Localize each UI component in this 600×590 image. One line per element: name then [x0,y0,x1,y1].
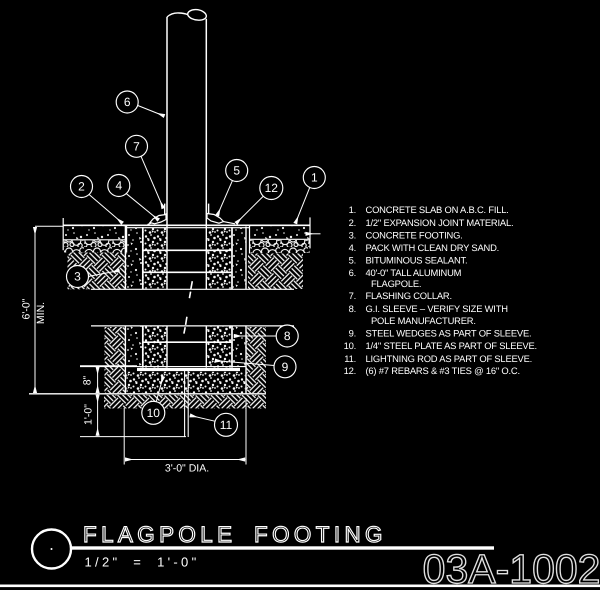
svg-text:10.: 10. [344,340,356,351]
svg-text:(6) #7 REBARS & #3 TIES @ 16": (6) #7 REBARS & #3 TIES @ 16" O.C. [366,365,520,376]
svg-text:STEEL WEDGES AS PART OF SLEEVE: STEEL WEDGES AS PART OF SLEEVE. [366,328,532,339]
svg-text:9: 9 [282,360,289,374]
svg-text:6.: 6. [349,267,356,278]
svg-text:7.: 7. [349,290,356,301]
svg-text:G.I. SLEEVE – VERIFY SIZE WITH: G.I. SLEEVE – VERIFY SIZE WITH [366,303,508,314]
svg-text:40'-0" TALL ALUMINUM: 40'-0" TALL ALUMINUM [366,267,462,278]
svg-text:4: 4 [115,179,122,193]
svg-text:7: 7 [133,140,140,154]
svg-text:1/2" EXPANSION JOINT MATERIAL.: 1/2" EXPANSION JOINT MATERIAL. [366,217,514,228]
svg-text:2.: 2. [349,217,356,228]
svg-text:LIGHTNING ROD AS PART OF SLEEV: LIGHTNING ROD AS PART OF SLEEVE. [366,353,533,364]
svg-text:FLASHING COLLAR.: FLASHING COLLAR. [366,290,452,301]
svg-text:9.: 9. [349,328,356,339]
svg-text:1: 1 [311,171,318,185]
svg-text:2: 2 [78,180,85,194]
svg-text:1/2" = 1'-0": 1/2" = 1'-0" [85,555,200,570]
svg-text:MIN.: MIN. [35,302,47,324]
svg-text:12: 12 [265,181,279,195]
svg-text:FLAGPOLE.: FLAGPOLE. [371,278,421,289]
svg-text:6: 6 [124,95,131,109]
svg-text:6'-0": 6'-0" [21,298,33,319]
svg-text:10: 10 [147,406,161,420]
svg-text:1/4" STEEL PLATE AS PART OF SL: 1/4" STEEL PLATE AS PART OF SLEEVE. [366,340,537,351]
svg-text:11: 11 [220,418,233,432]
svg-text:8.: 8. [349,303,356,314]
svg-text:11.: 11. [344,353,356,364]
svg-text:8": 8" [81,375,93,385]
svg-text:PACK WITH CLEAN DRY SAND.: PACK WITH CLEAN DRY SAND. [366,242,500,253]
svg-text:3'-0" DIA.: 3'-0" DIA. [165,463,209,475]
svg-text:FLAGPOLE FOOTING: FLAGPOLE FOOTING [83,522,387,547]
svg-text:POLE MANUFACTURER.: POLE MANUFACTURER. [371,315,476,326]
svg-text:4.: 4. [349,242,356,253]
svg-text:BITUMINOUS SEALANT.: BITUMINOUS SEALANT. [366,254,468,265]
svg-text:1.: 1. [349,204,356,215]
svg-text:8: 8 [284,329,291,343]
svg-text:5: 5 [233,164,240,178]
svg-text:03A-1002: 03A-1002 [423,546,600,590]
svg-text:1'-0": 1'-0" [82,404,94,425]
svg-text:CONCRETE SLAB ON A.B.C. FILL.: CONCRETE SLAB ON A.B.C. FILL. [366,204,509,215]
svg-text:12.: 12. [344,365,356,376]
svg-text:3: 3 [74,270,81,284]
svg-text:CONCRETE FOOTING.: CONCRETE FOOTING. [366,229,463,240]
svg-text:5.: 5. [349,254,356,265]
svg-text:3.: 3. [349,229,356,240]
